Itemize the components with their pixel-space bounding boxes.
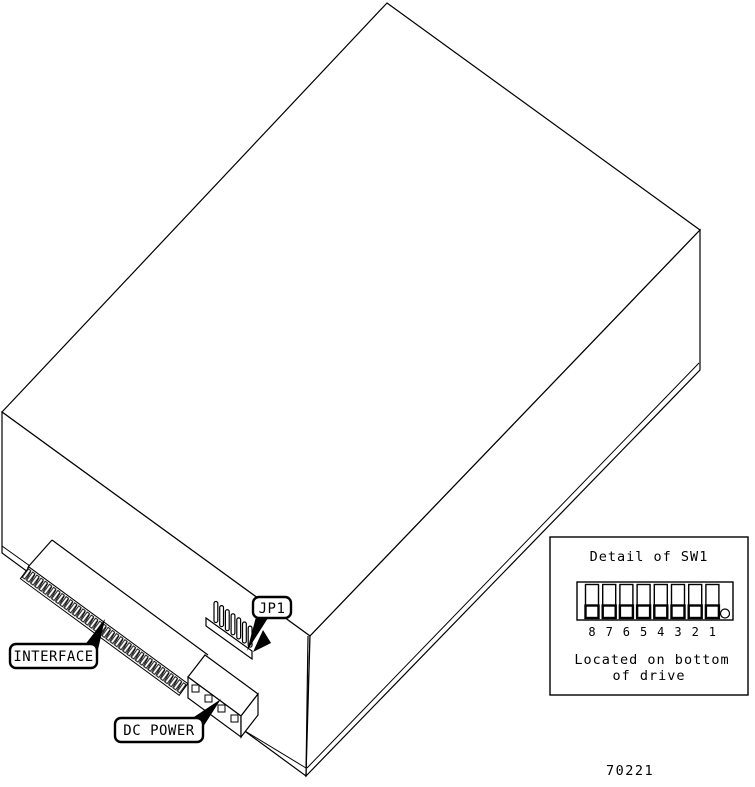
jp1-callout-label: JP1 [259, 601, 286, 617]
jp1-pin [231, 614, 235, 635]
jp1-pin [225, 610, 229, 631]
switch-number: 4 [657, 625, 664, 639]
dip-switch-orientation-dot [721, 609, 730, 618]
drive-diagram: JP1 INTERFACE DC POWER Detail of SW1 [0, 0, 755, 787]
dip-switch-position-2 [689, 585, 702, 619]
dip-switch-position-7 [603, 585, 616, 619]
sw1-detail-title: Detail of SW1 [590, 549, 709, 565]
switch-number: 3 [674, 625, 681, 639]
dip-switch-position-6 [620, 585, 633, 619]
jp1-pin [237, 618, 241, 639]
dip-switch [577, 582, 733, 620]
dc-power-callout-label: DC POWER [123, 723, 195, 739]
sw1-caption-line2: of drive [612, 668, 685, 684]
sw1-caption-line1: Located on bottom [574, 652, 729, 668]
dip-switch-position-3 [672, 585, 685, 619]
switch-number: 6 [623, 625, 630, 639]
interface-callout-label: INTERFACE [13, 649, 93, 665]
dip-switch-position-4 [654, 585, 667, 619]
sw1-detail-panel: Detail of SW1 [550, 537, 748, 695]
jp1-pin [214, 602, 218, 623]
switch-number: 5 [640, 625, 647, 639]
dip-switch-position-5 [637, 585, 650, 619]
switch-number: 1 [709, 625, 716, 639]
switch-number: 2 [692, 625, 699, 639]
figure-canvas: JP1 INTERFACE DC POWER Detail of SW1 [0, 0, 755, 787]
dip-switch-position-1 [706, 585, 719, 619]
dip-switch-position-8 [586, 585, 599, 619]
switch-number: 7 [606, 625, 613, 639]
switch-number: 8 [588, 625, 595, 639]
figure-number: 70221 [606, 763, 654, 779]
jp1-pin [220, 606, 224, 627]
jp1-pin [243, 622, 247, 643]
